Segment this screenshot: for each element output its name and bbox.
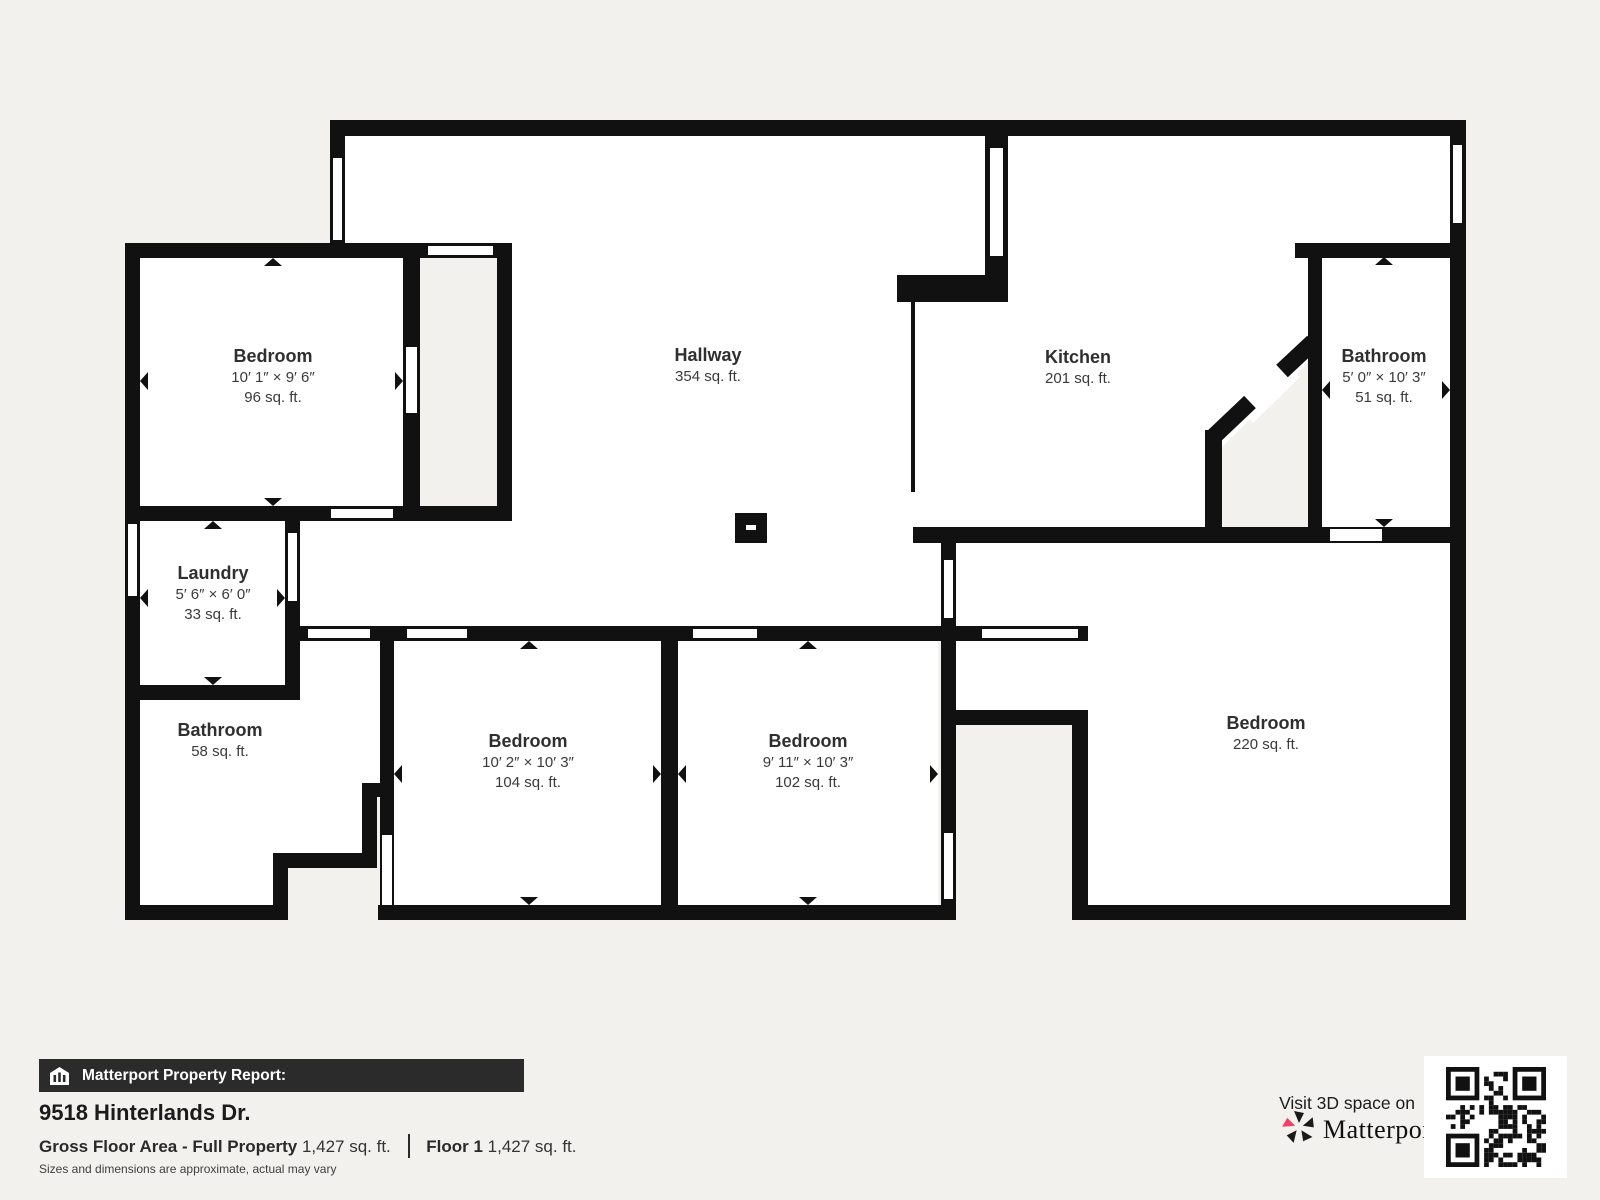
report-header-bar: Matterport Property Report: bbox=[39, 1059, 524, 1092]
room-label-kitchen: Kitchen201 sq. ft. bbox=[1045, 346, 1111, 389]
room-label-laundry: Laundry5′ 6″ × 6′ 0″33 sq. ft. bbox=[175, 562, 250, 625]
room-label-bathroom-51: Bathroom5′ 0″ × 10′ 3″51 sq. ft. bbox=[1342, 345, 1427, 408]
report-title: Matterport Property Report: bbox=[82, 1067, 286, 1085]
room-label-bedroom-96: Bedroom10′ 1″ × 9′ 6″96 sq. ft. bbox=[231, 345, 314, 408]
matterport-pinwheel-icon bbox=[1282, 1110, 1316, 1149]
gross-area-label: Gross Floor Area - Full Property bbox=[39, 1137, 297, 1156]
room-label-bathroom-58: Bathroom58 sq. ft. bbox=[178, 719, 263, 762]
matterport-logo: Matterport® bbox=[1282, 1110, 1447, 1149]
column-mark bbox=[746, 525, 756, 530]
room-label-bedroom-102: Bedroom9′ 11″ × 10′ 3″102 sq. ft. bbox=[763, 730, 854, 793]
floor-value: 1,427 sq. ft. bbox=[488, 1137, 577, 1156]
floor-label: Floor 1 bbox=[426, 1137, 483, 1156]
gross-area-value: 1,427 sq. ft. bbox=[302, 1137, 391, 1156]
matterport-floor-plan-page: { "page": { "background_color": "#f2f1ee… bbox=[0, 0, 1600, 1200]
room-label-bedroom-104: Bedroom10′ 2″ × 10′ 3″104 sq. ft. bbox=[482, 730, 574, 793]
property-address: 9518 Hinterlands Dr. bbox=[39, 1100, 251, 1126]
room-label-hallway: Hallway354 sq. ft. bbox=[674, 344, 741, 387]
room-label-bedroom-220: Bedroom220 sq. ft. bbox=[1226, 712, 1305, 755]
qr-code bbox=[1424, 1056, 1567, 1178]
divider bbox=[408, 1134, 410, 1158]
disclaimer-text: Sizes and dimensions are approximate, ac… bbox=[39, 1162, 336, 1176]
building-icon bbox=[50, 1067, 69, 1085]
floor-area-info: Gross Floor Area - Full Property 1,427 s… bbox=[39, 1134, 577, 1158]
